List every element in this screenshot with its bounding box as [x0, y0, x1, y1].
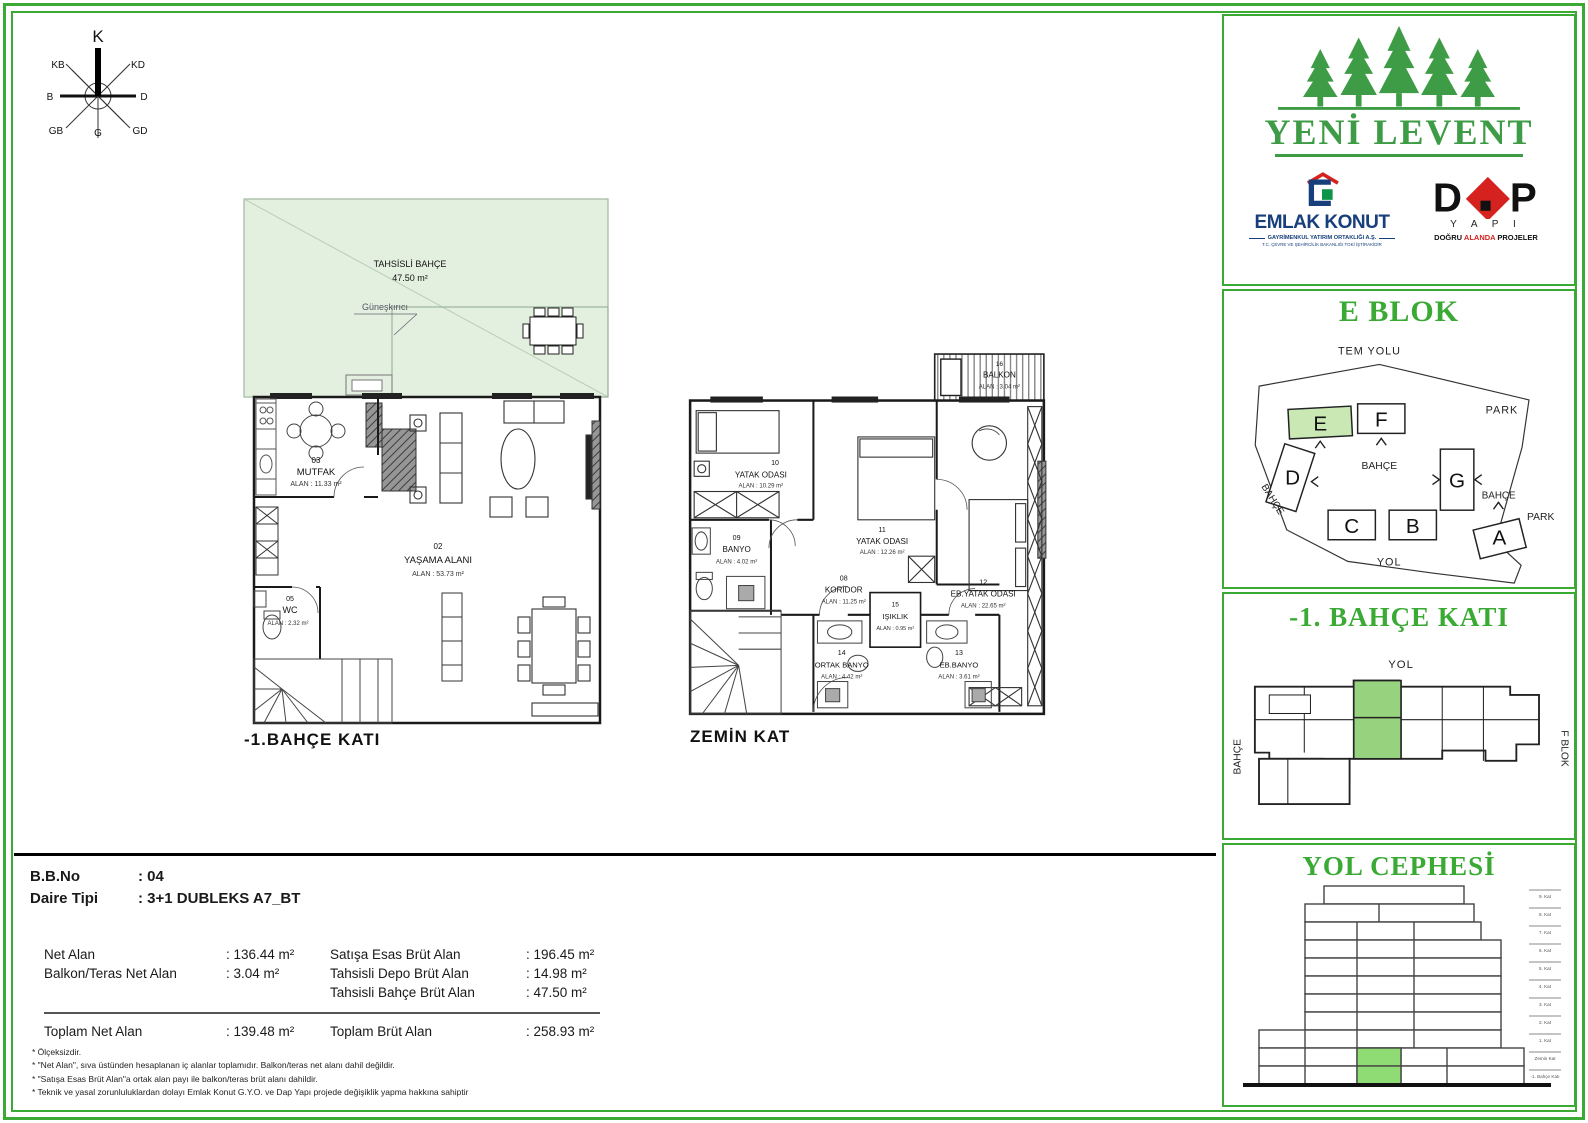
floor-label: 8. Kat	[1539, 912, 1552, 917]
logos-panel: YENİ LEVENT EMLAK KONUT GAYRİMENKUL YATI…	[1222, 14, 1576, 286]
block-c-label: C	[1344, 515, 1359, 538]
footnote: * "Satışa Esas Brüt Alan"a ortak alan pa…	[32, 1073, 468, 1086]
room-number: 09	[733, 535, 741, 542]
room-area: ALAN : 4.42 m²	[821, 674, 862, 680]
sidebar: YENİ LEVENT EMLAK KONUT GAYRİMENKUL YATI…	[1222, 14, 1576, 1109]
emlak-konut-subtitle: GAYRİMENKUL YATIRIM ORTAKLIĞI A.Ş.	[1249, 235, 1396, 241]
totals-divider	[44, 1012, 600, 1014]
room-area: ALAN : 22.65 m²	[961, 604, 1006, 610]
unit-info-panel: B.B.No : 04 Daire Tipi : 3+1 DUBLEKS A7_…	[14, 853, 1216, 1109]
block-a-label: A	[1493, 527, 1507, 550]
floor-label: -1. Bahçe Katı	[1530, 1074, 1559, 1079]
basement-floor-plan: TAHSİSLİ BAHÇE 47.50 m² Güneşkırıcı	[242, 197, 610, 757]
room-area: ALAN : 2.32 m²	[267, 621, 308, 627]
area-table: Net Alan : 136.44 m² Satışa Esas Brüt Al…	[44, 946, 644, 1042]
garden-label: TAHSİSLİ BAHÇE	[374, 259, 447, 269]
balcony: 16 BALKON ALAN : 3.04 m²	[935, 354, 1044, 400]
park-bottom-label: PARK	[1527, 512, 1554, 523]
emlak-konut-subtitle2: T.C. ÇEVRE VE ŞEHİRCİLİK BAKANLIĞI TOKİ …	[1262, 242, 1382, 247]
floor-key-title: -1. BAHÇE KATI	[1224, 602, 1574, 633]
svg-text:D: D	[1433, 175, 1462, 219]
dap-yapi-logo: D P Y A P I DOĞRU ALANDA PROJELER	[1426, 171, 1546, 242]
basement-plan-title: -1.BAHÇE KATI	[244, 730, 380, 750]
floor-label: 9. Kat	[1539, 894, 1552, 899]
room-area: ALAN : 3.04 m²	[979, 384, 1020, 390]
yol-label: YOL	[1388, 659, 1414, 671]
room-area: ALAN : 12.26 m²	[860, 550, 905, 556]
room-area: ALAN : 0.95 m²	[876, 626, 914, 632]
satis-brut-value: : 196.45 m²	[526, 946, 646, 964]
project-logo-text: YENİ LEVENT	[1264, 114, 1533, 150]
site-plan-panel: E BLOK E F D G C B	[1222, 289, 1576, 589]
bahce-brut-value: : 47.50 m²	[526, 984, 646, 1002]
floor-key-map: YOL BAHÇE F BLOK	[1224, 633, 1574, 829]
room-number: 03	[312, 456, 321, 465]
dap-yapi-text: Y A P I	[1450, 219, 1522, 230]
floor-label: Zemin Kat	[1535, 1056, 1557, 1061]
room-number: 15	[892, 602, 900, 609]
block-b-label: B	[1406, 515, 1420, 538]
net-alan-label: Net Alan	[44, 946, 222, 964]
emlak-konut-logo: EMLAK KONUT GAYRİMENKUL YATIRIM ORTAKLIĞ…	[1252, 171, 1392, 247]
room-name: ORTAK BANYO	[815, 660, 869, 669]
block-g-label: G	[1449, 470, 1465, 493]
dap-tagline: DOĞRU ALANDA PROJELER	[1434, 233, 1538, 242]
sun-breaker-label: Güneşkırıcı	[362, 302, 408, 312]
floor-plan-sheet: K KB KD B D GB G GD TAHSİSLİ BAHÇE	[0, 0, 1588, 1123]
elevation-panel: YOL CEPHESİ	[1222, 843, 1576, 1107]
room-name: IŞIKLIK	[882, 612, 908, 621]
bahce-label: BAHÇE	[1232, 739, 1243, 775]
ground-floor-plan: 16 BALKON ALAN : 3.04 m²	[678, 350, 1058, 726]
block-d-label: D	[1285, 467, 1300, 490]
highlighted-unit	[1354, 681, 1401, 759]
compass-sw-label: GB	[49, 126, 64, 137]
room-name: EB.YATAK ODASI	[951, 590, 1016, 599]
unit-type-value: : 3+1 DUBLEKS A7_BT	[138, 888, 300, 910]
footnote: * Teknik ve yasal zorunluluklardan dolay…	[32, 1086, 468, 1099]
garden-area-label: 47.50 m²	[392, 273, 428, 283]
inner-room	[1269, 695, 1310, 714]
park-top-label: PARK	[1486, 405, 1519, 417]
room-area: ALAN : 11.25 m²	[822, 600, 866, 606]
garden-planter	[346, 375, 392, 395]
compass-e-label: D	[140, 92, 147, 103]
floor-label: 5. Kat	[1539, 966, 1552, 971]
bahce-right-label: BAHÇE	[1482, 490, 1516, 501]
dap-icon: D P	[1431, 175, 1541, 219]
room-name: YAŞAMA ALANI	[404, 555, 472, 566]
floor-label: 3. Kat	[1539, 1002, 1552, 1007]
floor-label: 6. Kat	[1539, 948, 1552, 953]
logo-underline	[1275, 154, 1523, 157]
footnotes: * Ölçeksizdir. * "Net Alan", sıva üstünd…	[32, 1046, 468, 1099]
dap-tag-pre: DOĞRU	[1434, 233, 1464, 242]
site-plan-title: E BLOK	[1224, 295, 1574, 329]
elevation-drawing: 9. Kat 8. Kat 7. Kat 6. Kat 5. Kat 4. Ka…	[1224, 882, 1574, 1100]
floor-label: 2. Kat	[1539, 1020, 1552, 1025]
room-name: KORİDOR	[825, 586, 863, 595]
depo-brut-value: : 14.98 m²	[526, 965, 646, 983]
room-number: 08	[840, 575, 848, 582]
room-number: 02	[434, 542, 443, 551]
room-number: 14	[838, 650, 846, 657]
tem-yolu-label: TEM YOLU	[1338, 346, 1401, 358]
bb-no-value: : 04	[138, 866, 164, 888]
window-sills	[710, 396, 1009, 402]
depo-brut-label: Tahsisli Depo Brüt Alan	[330, 965, 522, 983]
room-number: 16	[996, 361, 1004, 368]
floor-labels: 9. Kat 8. Kat 7. Kat 6. Kat 5. Kat 4. Ka…	[1529, 890, 1561, 1079]
ground-plan-title: ZEMİN KAT	[690, 727, 790, 747]
room-name: YATAK ODASI	[735, 470, 787, 479]
bb-no-row: B.B.No : 04	[30, 866, 1216, 888]
room-area: ALAN : 4.02 m²	[716, 559, 757, 565]
net-alan-value: : 136.44 m²	[226, 946, 326, 964]
compass-w-label: B	[47, 92, 54, 103]
shaft	[366, 403, 382, 447]
shaft	[382, 429, 416, 491]
main-drawing-area: K KB KD B D GB G GD TAHSİSLİ BAHÇE	[14, 14, 1218, 1109]
bahce-brut-label: Tahsisli Bahçe Brüt Alan	[330, 984, 522, 1002]
room-area: ALAN : 53.73 m²	[412, 571, 464, 578]
room-number: 10	[771, 460, 779, 467]
compass-se-label: GD	[133, 126, 148, 137]
room-number: 13	[955, 650, 963, 657]
emlak-konut-icon	[1299, 171, 1345, 211]
emlak-konut-name: EMLAK KONUT	[1255, 212, 1390, 234]
satis-brut-label: Satışa Esas Brüt Alan	[330, 946, 522, 964]
floor-key-panel: -1. BAHÇE KATI YOL BAHÇE F BLOK	[1222, 592, 1576, 840]
room-name: WC	[283, 605, 298, 615]
allocated-garden: TAHSİSLİ BAHÇE 47.50 m² Güneşkırıcı	[244, 199, 608, 397]
site-plan-map: E F D G C B A	[1224, 329, 1574, 587]
toplam-net-label: Toplam Net Alan	[44, 1023, 222, 1041]
room-name: BALKON	[983, 370, 1016, 379]
yol-label: YOL	[1377, 556, 1402, 568]
bahce-center-label: BAHÇE	[1362, 461, 1398, 472]
f-blok-label: F BLOK	[1559, 730, 1570, 767]
room-name: MUTFAK	[297, 467, 336, 478]
room-name: YATAK ODASI	[856, 537, 908, 546]
footnote: * Ölçeksizdir.	[32, 1046, 468, 1059]
room-area: ALAN : 10.29 m²	[739, 483, 784, 489]
room-number: 11	[878, 527, 885, 534]
room-area: ALAN : 11.33 m²	[290, 481, 342, 488]
pine-trees-icon	[1259, 24, 1539, 120]
block-e-label: E	[1313, 412, 1327, 435]
dap-tag-mid: ALANDA	[1464, 233, 1495, 242]
toplam-brut-label: Toplam Brüt Alan	[330, 1023, 522, 1041]
room-area: ALAN : 3.61 m²	[938, 674, 979, 680]
shaft	[592, 421, 600, 509]
room-number: 05	[286, 596, 294, 603]
compass-s-label: G	[94, 128, 102, 139]
svg-text:P: P	[1510, 175, 1537, 219]
dap-tag-post: PROJELER	[1495, 233, 1538, 242]
floor-label: 7. Kat	[1539, 930, 1552, 935]
compass-ne-label: KD	[131, 60, 145, 71]
highlighted-floor-cell	[1357, 1066, 1401, 1084]
unit-type-row: Daire Tipi : 3+1 DUBLEKS A7_BT	[30, 888, 1216, 910]
balkon-net-label: Balkon/Teras Net Alan	[44, 965, 222, 983]
floor-label: 4. Kat	[1539, 984, 1552, 989]
unit-type-label: Daire Tipi	[30, 888, 138, 910]
room-number: 12	[979, 579, 987, 586]
highlighted-floor-cell	[1357, 1048, 1401, 1066]
floor-label: 1. Kat	[1539, 1038, 1552, 1043]
toplam-brut-value: : 258.93 m²	[526, 1023, 646, 1041]
footnote: * "Net Alan", sıva üstünden hesaplanan i…	[32, 1059, 468, 1072]
toplam-net-value: : 139.48 m²	[226, 1023, 326, 1041]
compass-nw-label: KB	[51, 60, 65, 71]
room-name: EB.BANYO	[940, 660, 979, 669]
room-name: BANYO	[722, 545, 750, 554]
lower-annex	[1259, 759, 1350, 804]
balkon-net-value: : 3.04 m²	[226, 965, 326, 983]
compass-rose-icon: K KB KD B D GB G GD	[36, 28, 156, 148]
elevation-title: YOL CEPHESİ	[1224, 851, 1574, 882]
bb-no-label: B.B.No	[30, 866, 138, 888]
compass-n-label: K	[92, 28, 104, 46]
block-f-label: F	[1375, 408, 1388, 431]
